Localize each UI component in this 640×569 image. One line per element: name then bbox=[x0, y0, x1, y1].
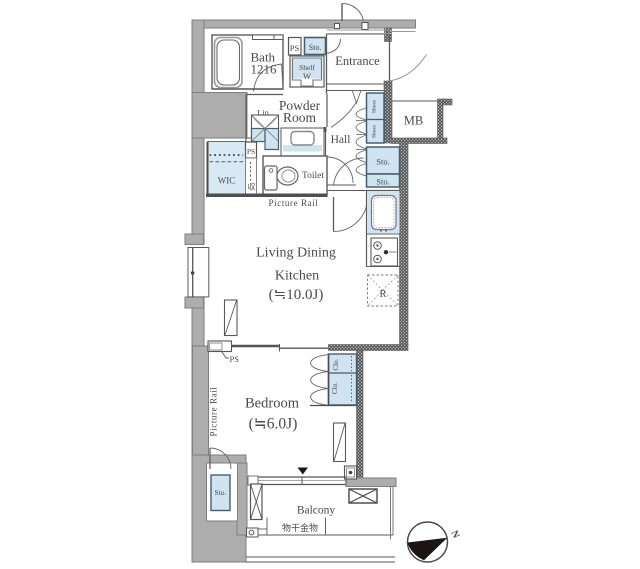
svg-text:W: W bbox=[303, 71, 311, 81]
svg-text:物干金物: 物干金物 bbox=[282, 522, 318, 533]
svg-text:Bedroom: Bedroom bbox=[245, 396, 300, 412]
svg-text:PS: PS bbox=[290, 43, 300, 53]
svg-text:PS: PS bbox=[230, 354, 240, 364]
svg-text:Sto.: Sto. bbox=[215, 488, 227, 497]
svg-text:Picture Rail: Picture Rail bbox=[269, 198, 319, 208]
svg-text:Picture Rail: Picture Rail bbox=[209, 387, 219, 437]
svg-text:Clo.: Clo. bbox=[332, 358, 340, 370]
svg-text:Clo.: Clo. bbox=[331, 382, 339, 394]
svg-text:Kitchen: Kitchen bbox=[275, 269, 319, 284]
svg-text:Hall: Hall bbox=[331, 134, 351, 146]
svg-text:(≒10.0J): (≒10.0J) bbox=[269, 287, 324, 303]
svg-text:Entrance: Entrance bbox=[335, 54, 380, 68]
svg-text:R: R bbox=[379, 289, 386, 300]
svg-text:WIC: WIC bbox=[218, 176, 236, 186]
svg-text:1216: 1216 bbox=[251, 62, 278, 77]
svg-text:Shoes: Shoes bbox=[372, 125, 378, 138]
svg-text:Sto.: Sto. bbox=[376, 157, 389, 167]
svg-text:Lin.: Lin. bbox=[257, 108, 271, 118]
svg-text:Living Dining: Living Dining bbox=[256, 246, 336, 261]
svg-text:Shoes: Shoes bbox=[372, 100, 378, 113]
svg-text:Sto.: Sto. bbox=[309, 43, 322, 52]
svg-text:MB: MB bbox=[404, 114, 423, 128]
svg-text:収: 収 bbox=[248, 182, 256, 192]
svg-text:Toilet: Toilet bbox=[302, 171, 324, 181]
svg-text:PS: PS bbox=[247, 147, 255, 156]
svg-text:Sto.: Sto. bbox=[376, 177, 389, 187]
svg-text:(≒6.0J): (≒6.0J) bbox=[249, 416, 298, 433]
svg-text:Room: Room bbox=[283, 110, 317, 125]
svg-text:Balcony: Balcony bbox=[297, 505, 336, 517]
